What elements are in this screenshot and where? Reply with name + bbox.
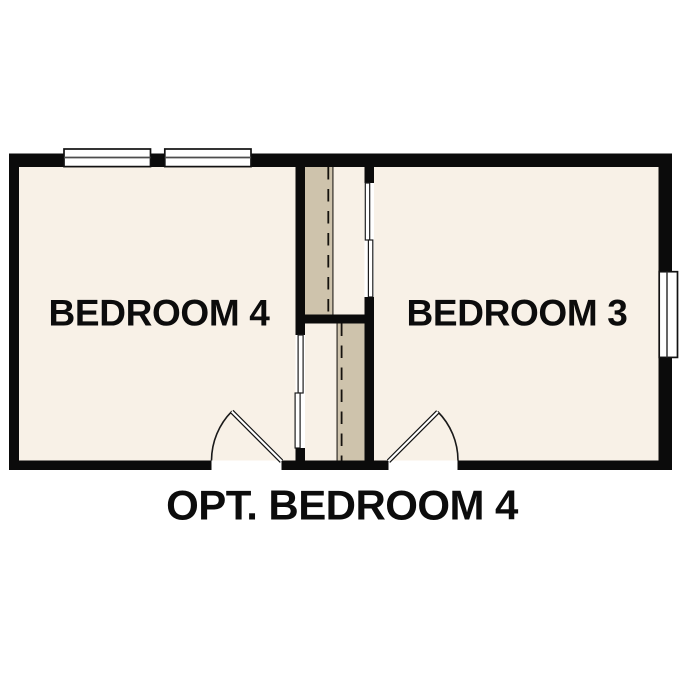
svg-text:BEDROOM 3: BEDROOM 3	[407, 293, 628, 334]
svg-text:OPT. BEDROOM 4: OPT. BEDROOM 4	[166, 482, 519, 529]
svg-text:BEDROOM 4: BEDROOM 4	[49, 293, 271, 334]
